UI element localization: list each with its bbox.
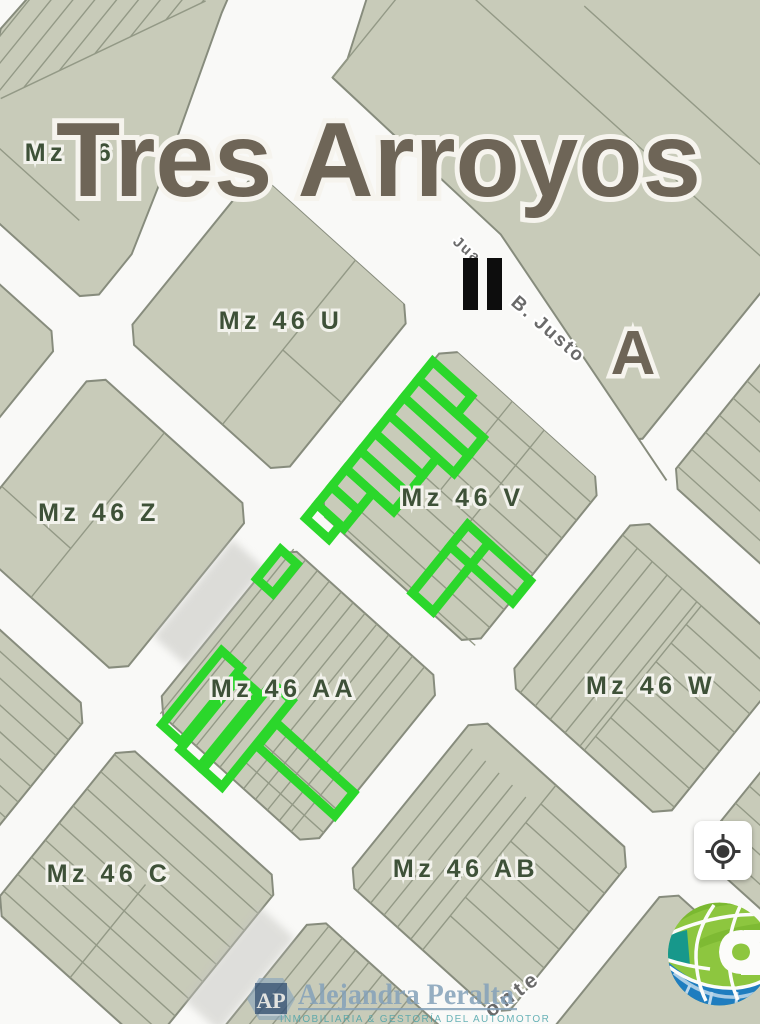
svg-text:AP: AP bbox=[256, 988, 285, 1013]
svg-text:Mz 46 V: Mz 46 V bbox=[401, 484, 524, 512]
svg-text:Mz 46 C: Mz 46 C bbox=[47, 860, 172, 888]
svg-text:Mz 46 AA: Mz 46 AA bbox=[211, 675, 357, 703]
svg-text:Alejandra Peralta: Alejandra Peralta bbox=[298, 978, 514, 1011]
svg-text:Tres Arroyos: Tres Arroyos bbox=[56, 101, 701, 219]
svg-text:Mz 46 W: Mz 46 W bbox=[586, 672, 716, 700]
svg-text:INMOBILIARIA & GESTORÍA DEL AU: INMOBILIARIA & GESTORÍA DEL AUTOMOTOR bbox=[280, 1012, 550, 1024]
svg-text:A: A bbox=[611, 319, 656, 388]
svg-text:Mz 46 AB: Mz 46 AB bbox=[393, 855, 539, 883]
svg-text:Mz 46 U: Mz 46 U bbox=[219, 307, 344, 335]
svg-text:Mz 46 Z: Mz 46 Z bbox=[38, 499, 160, 527]
